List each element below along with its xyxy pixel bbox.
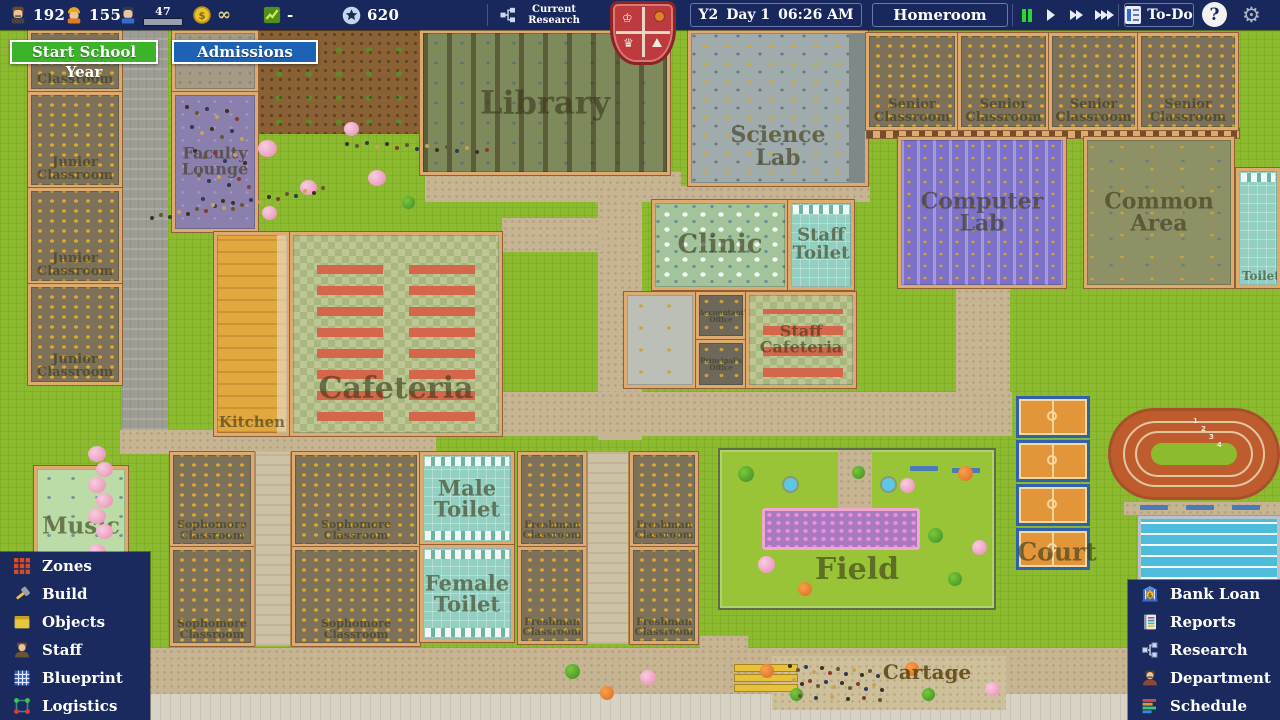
tree <box>758 556 775 573</box>
money-readout[interactable]: $ ∞ <box>192 0 231 30</box>
room-label: Freshman Classroom <box>633 521 695 541</box>
cherry-tree <box>96 493 113 508</box>
cherry-tree <box>88 446 106 462</box>
cherry-tree <box>344 122 359 136</box>
student-capacity-bar <box>143 18 183 26</box>
room-junior-classroom-4[interactable]: Junior Classroom <box>28 284 122 385</box>
room-junior-classroom-2[interactable]: Junior Classroom <box>28 92 122 188</box>
teacher-count-value: 192 <box>33 6 65 24</box>
lane-number: 2 <box>1201 425 1206 433</box>
fastest-forward-button[interactable] <box>1089 3 1119 27</box>
money-value: ∞ <box>217 5 231 25</box>
room-toilet-east[interactable]: Toilet <box>1236 168 1280 288</box>
path-east-spur <box>956 288 1010 394</box>
school-crest[interactable]: ♔ ♛ <box>610 1 676 65</box>
student-count-value: 47 <box>155 6 171 17</box>
current-research-button[interactable]: Current Research <box>498 0 586 30</box>
cartage-crowd <box>788 664 792 668</box>
tree <box>948 572 962 586</box>
pause-icon <box>1028 9 1032 22</box>
fast-forward-button[interactable] <box>1063 3 1089 27</box>
cherry-tree <box>96 524 113 539</box>
crest-queen-icon: ♛ <box>623 37 634 49</box>
swimming-pool[interactable] <box>1138 516 1280 582</box>
student-icon <box>118 6 137 25</box>
todo-label: To-Do <box>1147 7 1192 23</box>
room-female-toilet[interactable]: Female Toilet <box>420 545 514 642</box>
todo-list-icon <box>1125 6 1141 24</box>
room-label: Female Toilet <box>423 572 511 615</box>
bank-loan-icon: $ <box>1140 585 1159 604</box>
room-label: Junior Classroom <box>31 252 119 279</box>
coin-icon: $ <box>192 6 211 25</box>
room-freshman-classroom-2[interactable]: Freshman Classroom <box>518 547 586 644</box>
room-cafeteria[interactable]: Cafeteria <box>290 232 502 436</box>
room-senior-classroom-1[interactable]: Senior Classroom <box>866 33 958 130</box>
tree <box>905 662 919 676</box>
cafeteria-tables <box>317 253 383 421</box>
game-clock: Y2 Day 1 06:26 AM <box>690 3 862 27</box>
tree <box>985 682 1000 696</box>
cafeteria-tables <box>763 309 843 377</box>
help-label: ? <box>1210 5 1220 25</box>
tree <box>922 688 935 701</box>
growth-readout[interactable]: - <box>262 0 294 30</box>
builder-count-value: 155 <box>89 6 121 24</box>
current-research-label: Current Research <box>522 4 586 26</box>
path-main-horizontal <box>502 392 1012 436</box>
menu-item-reports[interactable]: Reports <box>1128 608 1280 636</box>
clock-day: Day 1 <box>726 7 770 23</box>
cherry-tree <box>262 206 277 220</box>
pause-button[interactable] <box>1016 3 1038 27</box>
fountain <box>880 476 897 493</box>
room-label: Sophomore Classroom <box>173 618 251 640</box>
cherry-tree <box>88 508 106 524</box>
room-kitchen[interactable]: Kitchen <box>214 232 290 436</box>
room-senior-classroom-2[interactable]: Senior Classroom <box>958 33 1049 130</box>
department-icon <box>1140 669 1159 688</box>
student-count[interactable]: 47 <box>118 0 183 30</box>
basketball-court[interactable] <box>1016 528 1090 570</box>
schedule-icon <box>1140 697 1159 716</box>
menu-item-blueprint[interactable]: Blueprint <box>0 664 150 692</box>
room-label: Sophomore Classroom <box>295 519 417 541</box>
room-principals-office[interactable]: Principal's Office <box>696 340 746 388</box>
room-label: Senior Classroom <box>1052 98 1135 125</box>
settings-gear-icon[interactable]: ⚙ <box>1242 2 1261 28</box>
room-label: Sophomore Classroom <box>295 618 417 640</box>
menu-item-label: Bank Loan <box>1170 585 1260 603</box>
build-menu: Zones Build Objects Staff Blueprint <box>0 552 150 720</box>
room-senior-classroom-4[interactable]: Senior Classroom <box>1138 33 1238 130</box>
room-label: Senior Classroom <box>869 98 955 125</box>
game-viewport: Classroom Junior Classroom Junior Classr… <box>0 0 1280 720</box>
menu-item-label: Department <box>1170 669 1271 687</box>
menu-item-research[interactable]: Research <box>1128 636 1280 664</box>
room-sophomore-classroom-2[interactable]: Sophomore Classroom <box>170 547 254 646</box>
bench <box>1186 505 1214 510</box>
toilet-stalls <box>425 550 509 559</box>
room-label: Library <box>423 86 667 119</box>
menu-item-logistics[interactable]: Logistics <box>0 692 150 720</box>
room-label: Sophomore Classroom <box>173 519 251 541</box>
topbar-divider <box>487 4 488 26</box>
room-computer-lab[interactable]: Computer Lab <box>898 137 1066 288</box>
path-south-road <box>0 648 1280 696</box>
cartage-ground <box>772 656 1006 710</box>
menu-item-label: Build <box>42 585 87 603</box>
room-label: Staff Toilet <box>791 227 851 264</box>
room-label: Junior Classroom <box>31 156 119 183</box>
homeroom-label: Homeroom <box>893 6 986 24</box>
student-crowd-queue <box>345 142 349 146</box>
room-sophomore-classroom-1[interactable]: Sophomore Classroom <box>170 452 254 547</box>
room-sophomore-classroom-4[interactable]: Sophomore Classroom <box>292 547 420 646</box>
room-label: Junior Classroom <box>31 353 119 380</box>
reputation-star-icon <box>342 6 361 25</box>
clock-time: 06:26 AM <box>778 7 853 23</box>
room-label: Common Area <box>1087 190 1231 235</box>
room-faculty-lounge[interactable]: Faculty Lounge <box>172 92 258 232</box>
room-label: Principal's Office <box>699 357 743 371</box>
room-freshman-classroom-1[interactable]: Freshman Classroom <box>518 452 586 547</box>
crest-crown-icon: ♔ <box>622 12 633 24</box>
corridor <box>254 452 292 646</box>
menu-item-label: Blueprint <box>42 669 123 687</box>
cherry-tree <box>300 180 317 195</box>
objects-icon <box>12 613 31 632</box>
track-infield <box>1151 443 1237 465</box>
reputation-readout[interactable]: 620 <box>342 0 399 30</box>
cherry-tree <box>96 462 113 477</box>
sidewalk-south <box>0 694 1280 720</box>
research-icon <box>1140 641 1159 660</box>
path-center-spur <box>502 218 602 252</box>
reputation-value: 620 <box>367 6 399 24</box>
tree <box>972 540 987 555</box>
room-freshman-classroom-3[interactable]: Freshman Classroom <box>630 452 698 547</box>
bench <box>1140 505 1168 510</box>
topbar-divider <box>1118 4 1119 26</box>
field-path <box>838 450 872 508</box>
pause-icon <box>1022 9 1026 22</box>
tree <box>402 196 415 209</box>
cafeteria-tables <box>409 253 475 421</box>
tree <box>738 466 754 482</box>
reports-icon <box>1140 613 1159 632</box>
menu-item-label: Staff <box>42 641 82 659</box>
room-label: Freshman Classroom <box>521 618 583 638</box>
bench <box>1232 505 1260 510</box>
menu-item-label: Schedule <box>1170 697 1247 715</box>
builder-count[interactable]: 155 <box>64 0 121 30</box>
tree <box>565 664 580 679</box>
tree <box>928 528 943 543</box>
homeroom-button[interactable]: Homeroom <box>872 3 1008 27</box>
room-label: Kitchen <box>217 415 287 430</box>
flowerbed <box>762 508 920 550</box>
menu-item-build[interactable]: Build <box>0 580 150 608</box>
fastest-forward-icon <box>1107 10 1114 20</box>
lane-number: 4 <box>1217 441 1222 449</box>
room-label: Freshman Classroom <box>633 618 695 638</box>
bench <box>910 466 938 471</box>
road-west <box>122 30 168 430</box>
basketball-court[interactable] <box>1016 396 1090 438</box>
room-freshman-classroom-4[interactable]: Freshman Classroom <box>630 547 698 644</box>
fast-forward-icon <box>1076 10 1083 20</box>
menu-item-zones[interactable]: Zones <box>0 552 150 580</box>
room-label: Senior Classroom <box>1141 98 1235 125</box>
basketball-court[interactable] <box>1016 484 1090 526</box>
toilet-sinks <box>425 531 509 540</box>
tree <box>852 466 865 479</box>
cherry-tree <box>88 477 106 493</box>
fountain <box>782 476 799 493</box>
room-accountants-office[interactable]: Accountant's Office <box>696 292 746 339</box>
corridor <box>586 452 630 644</box>
menu-item-department[interactable]: Department <box>1128 664 1280 692</box>
room-label: Accountant's Office <box>699 308 743 322</box>
play-icon <box>1047 9 1055 21</box>
room-label: Computer Lab <box>901 190 1063 235</box>
room-junior-classroom-3[interactable]: Junior Classroom <box>28 188 122 284</box>
cartage-benches <box>734 684 798 692</box>
play-button[interactable] <box>1040 3 1062 27</box>
menu-item-label: Logistics <box>42 697 117 715</box>
room-sophomore-classroom-3[interactable]: Sophomore Classroom <box>292 452 420 547</box>
help-button[interactable]: ? <box>1202 2 1227 27</box>
growth-icon <box>262 6 281 25</box>
svg-text:$: $ <box>198 11 205 22</box>
growth-value: - <box>287 6 294 24</box>
toilet-stalls <box>793 205 849 214</box>
teacher-icon <box>8 6 27 25</box>
faculty-lounge-crowd <box>185 105 189 109</box>
build-icon <box>12 585 31 604</box>
room-male-toilet[interactable]: Male Toilet <box>420 452 514 545</box>
running-track[interactable]: 1 2 3 4 <box>1108 408 1280 500</box>
topbar-divider <box>1012 4 1013 26</box>
student-crowd-queue <box>150 216 154 220</box>
org-chart-icon <box>498 6 517 25</box>
crest-ship-icon <box>652 38 662 47</box>
room-label: Science Lab <box>691 124 865 169</box>
room-clinic[interactable]: Clinic <box>652 200 788 290</box>
room-label: Faculty Lounge <box>175 146 255 179</box>
menu-item-objects[interactable]: Objects <box>0 608 150 636</box>
menu-item-label: Reports <box>1170 613 1236 631</box>
menu-item-label: Research <box>1170 641 1248 659</box>
cherry-tree <box>368 170 386 186</box>
blueprint-icon <box>12 669 31 688</box>
crest-basketball-icon <box>654 11 665 22</box>
menu-item-label: Zones <box>42 557 92 575</box>
clock-year: Y2 <box>698 7 718 23</box>
staff-icon <box>12 641 31 660</box>
tree <box>760 664 774 678</box>
tree <box>600 686 614 700</box>
tree <box>640 670 656 685</box>
basketball-court[interactable] <box>1016 440 1090 482</box>
tree <box>900 478 915 493</box>
room-senior-classroom-3[interactable]: Senior Classroom <box>1049 33 1138 130</box>
toilet-sinks <box>425 628 509 637</box>
room-label: Clinic <box>655 232 785 259</box>
cherry-tree <box>258 140 277 157</box>
menu-item-label: Objects <box>42 613 105 631</box>
room-label: Freshman Classroom <box>521 521 583 541</box>
logistics-icon <box>12 697 31 716</box>
tree <box>958 466 973 481</box>
svg-text:$: $ <box>1147 591 1152 599</box>
room-common-area[interactable]: Common Area <box>1084 137 1234 288</box>
management-menu: $ Bank Loan Reports Research Department <box>1128 580 1280 720</box>
room-label: Toilet <box>1239 270 1277 282</box>
toilet-stalls <box>425 457 509 466</box>
teacher-count[interactable]: 192 <box>8 0 65 30</box>
zones-icon <box>12 557 31 576</box>
room-staff-toilet[interactable]: Staff Toilet <box>788 200 854 290</box>
start-school-year-button[interactable]: Start School Year <box>10 40 158 64</box>
room-label: Senior Classroom <box>961 98 1046 125</box>
lane-number: 3 <box>1209 433 1214 441</box>
tree <box>798 582 812 596</box>
toilet-stalls <box>1241 173 1275 182</box>
menu-item-schedule[interactable]: Schedule <box>1128 692 1280 720</box>
lane-number: 1 <box>1193 417 1198 425</box>
tree <box>790 688 803 701</box>
menu-item-staff[interactable]: Staff <box>0 636 150 664</box>
room-label: Male Toilet <box>423 477 511 520</box>
builder-icon <box>64 6 83 25</box>
room-office[interactable] <box>624 292 696 388</box>
admissions-button[interactable]: Admissions <box>172 40 318 64</box>
todo-button[interactable]: To-Do <box>1124 3 1194 27</box>
room-staff-cafeteria[interactable]: Staff Cafeteria <box>746 292 856 388</box>
menu-item-bank-loan[interactable]: $ Bank Loan <box>1128 580 1280 608</box>
room-science-lab[interactable]: Science Lab <box>688 30 868 186</box>
